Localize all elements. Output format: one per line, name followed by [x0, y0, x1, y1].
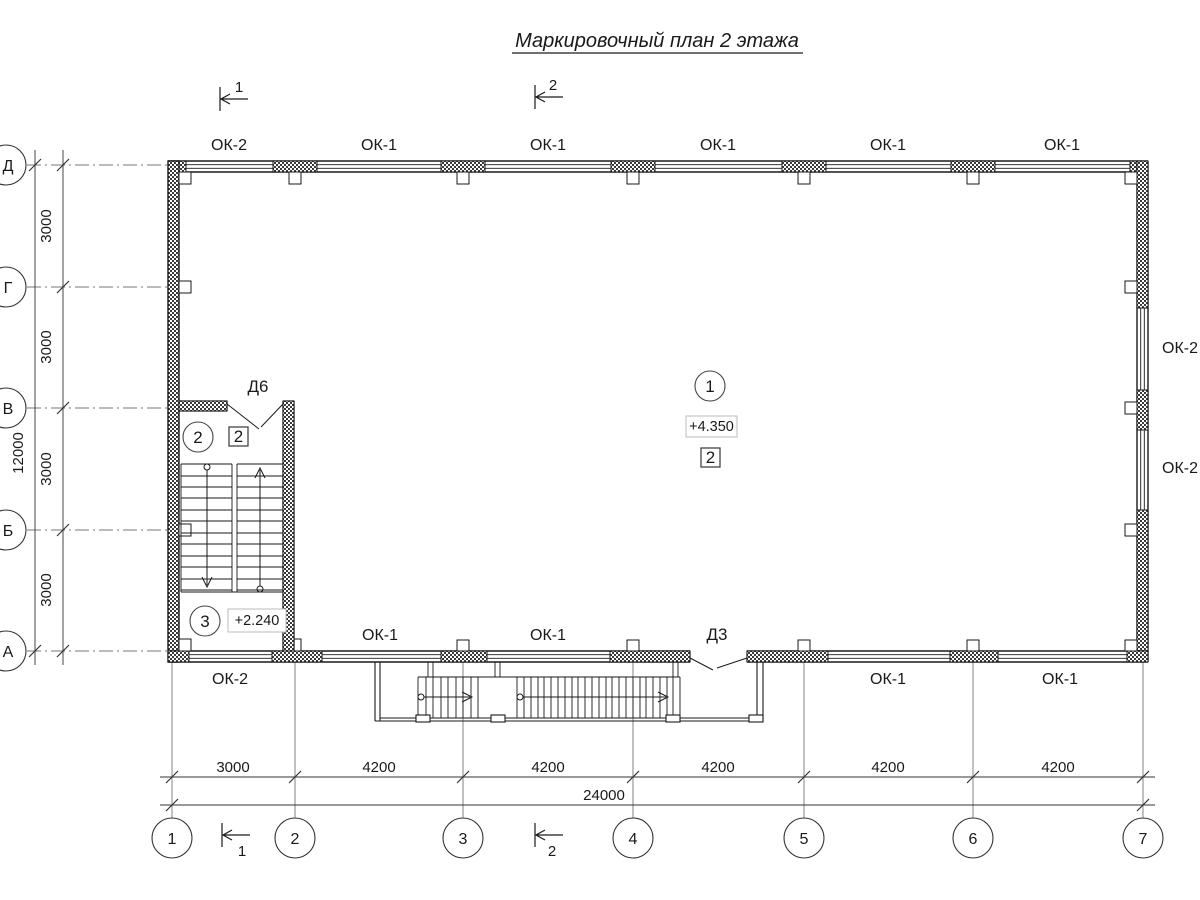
window-label-top-3: ОК-1 — [530, 137, 566, 154]
window-label-bottom-above-1: ОК-1 — [362, 627, 398, 644]
door-label-d6: Д6 — [248, 377, 269, 396]
door-d6-swing — [227, 404, 283, 429]
building-walls — [168, 161, 1148, 662]
exterior-stair — [375, 658, 763, 722]
window-label-top-4: ОК-1 — [700, 137, 736, 154]
axis-label-d: Д — [3, 158, 14, 175]
window-label-top-1: ОК-2 — [211, 137, 247, 154]
pilasters — [179, 172, 1137, 651]
door-d3-swing — [690, 658, 747, 670]
axis-label-5: 5 — [800, 831, 809, 848]
dim-bottom-6: 4200 — [1041, 759, 1074, 776]
section-label-top-1: 1 — [235, 79, 243, 96]
dim-left-3: 3000 — [38, 452, 55, 485]
axis-labels-left: Д Г В Б А — [3, 158, 14, 661]
window-label-top-5: ОК-1 — [870, 137, 906, 154]
room-number-stair-lower: 3 — [200, 612, 209, 631]
dim-bottom-1: 3000 — [216, 759, 249, 776]
dim-bottom-4: 4200 — [701, 759, 734, 776]
type-mark-stair: 2 — [234, 427, 243, 446]
dim-bottom-5: 4200 — [871, 759, 904, 776]
axis-label-4: 4 — [629, 831, 638, 848]
axis-grid — [27, 165, 1143, 818]
elevation-stair: +2.240 — [235, 613, 280, 629]
axis-label-b: Б — [3, 523, 14, 540]
axis-label-a: А — [3, 644, 14, 661]
stair-flights — [181, 464, 283, 592]
drawing-sheet: Маркировочный план 2 этажа — [0, 0, 1200, 900]
dim-left-4: 3000 — [38, 573, 55, 606]
window-label-top-6: ОК-1 — [1044, 137, 1080, 154]
drawing-title: Маркировочный план 2 этажа — [515, 30, 799, 52]
window-labels: ОК-2 ОК-1 ОК-1 ОК-1 ОК-1 ОК-1 ОК-2 ОК-2 … — [211, 137, 1198, 688]
axis-label-2: 2 — [291, 831, 300, 848]
section-label-bottom-2: 2 — [548, 843, 556, 860]
window-label-top-2: ОК-1 — [361, 137, 397, 154]
axis-label-1: 1 — [168, 831, 177, 848]
window-label-bottom-right-2: ОК-1 — [1042, 671, 1078, 688]
window-label-right-2: ОК-2 — [1162, 460, 1198, 477]
floor-plan-drawing: Маркировочный план 2 этажа — [0, 0, 1200, 900]
window-label-bottom-above-2: ОК-1 — [530, 627, 566, 644]
door-label-d3: Д3 — [707, 625, 728, 644]
dim-bottom-total: 24000 — [583, 787, 625, 804]
axis-label-6: 6 — [969, 831, 978, 848]
window-label-bottom-right-1: ОК-1 — [870, 671, 906, 688]
exterior-walk-lines — [418, 692, 668, 702]
dim-left-total: 12000 — [10, 432, 27, 474]
section-label-top-2: 2 — [549, 77, 557, 94]
type-mark-hall: 2 — [706, 448, 715, 467]
window-label-bottom-left: ОК-2 — [212, 671, 248, 688]
room-number-hall: 1 — [705, 377, 714, 396]
dimensions-bottom — [160, 771, 1155, 811]
section-label-bottom-1: 1 — [238, 843, 246, 860]
room-number-stair-upper: 2 — [193, 428, 202, 447]
room-markers: 1 +4.350 2 2 2 3 +2.240 — [183, 371, 737, 636]
dim-bottom-2: 4200 — [362, 759, 395, 776]
axis-label-3: 3 — [459, 831, 468, 848]
dim-bottom-3: 4200 — [531, 759, 564, 776]
dimension-labels-bottom: 3000 4200 4200 4200 4200 4200 24000 — [216, 759, 1074, 804]
axis-bubbles-bottom — [152, 818, 1163, 858]
section-markers — [220, 85, 563, 847]
elevation-hall: +4.350 — [689, 419, 734, 435]
dim-left-2: 3000 — [38, 330, 55, 363]
dim-left-1: 3000 — [38, 209, 55, 242]
window-label-right-1: ОК-2 — [1162, 340, 1198, 357]
axis-label-7: 7 — [1139, 831, 1148, 848]
axis-label-v: В — [3, 401, 14, 418]
axis-label-g: Г — [4, 280, 13, 297]
stair-walk-lines — [202, 464, 265, 592]
